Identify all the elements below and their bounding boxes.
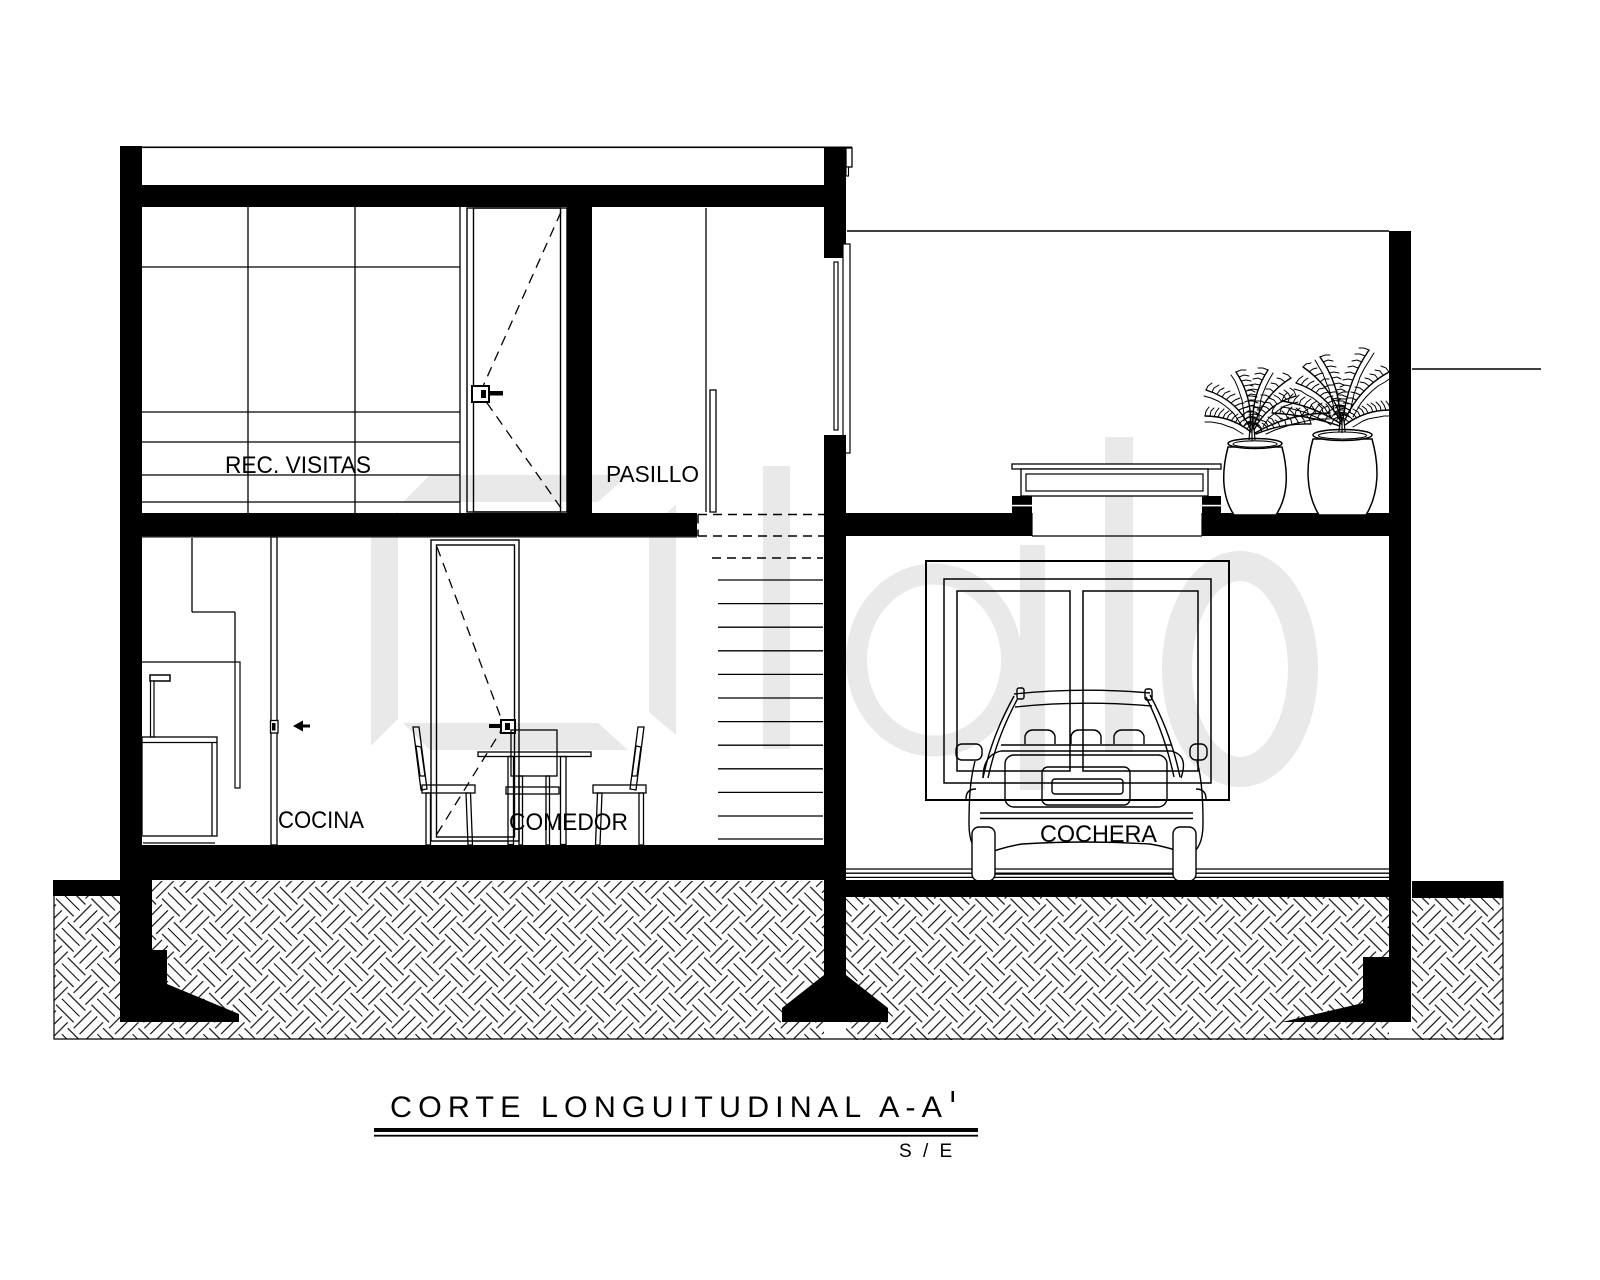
svg-text:CORTE LONGUITUDINAL A-A: CORTE LONGUITUDINAL A-A: [390, 1091, 948, 1124]
svg-text:COCINA: COCINA: [278, 807, 364, 834]
svg-text:PASILLO: PASILLO: [606, 461, 699, 487]
svg-text:COMEDOR: COMEDOR: [509, 809, 628, 836]
svg-text:S / E: S / E: [899, 1141, 955, 1162]
svg-text:REC. VISITAS: REC. VISITAS: [225, 452, 371, 479]
svg-text:COCHERA: COCHERA: [1040, 821, 1157, 848]
